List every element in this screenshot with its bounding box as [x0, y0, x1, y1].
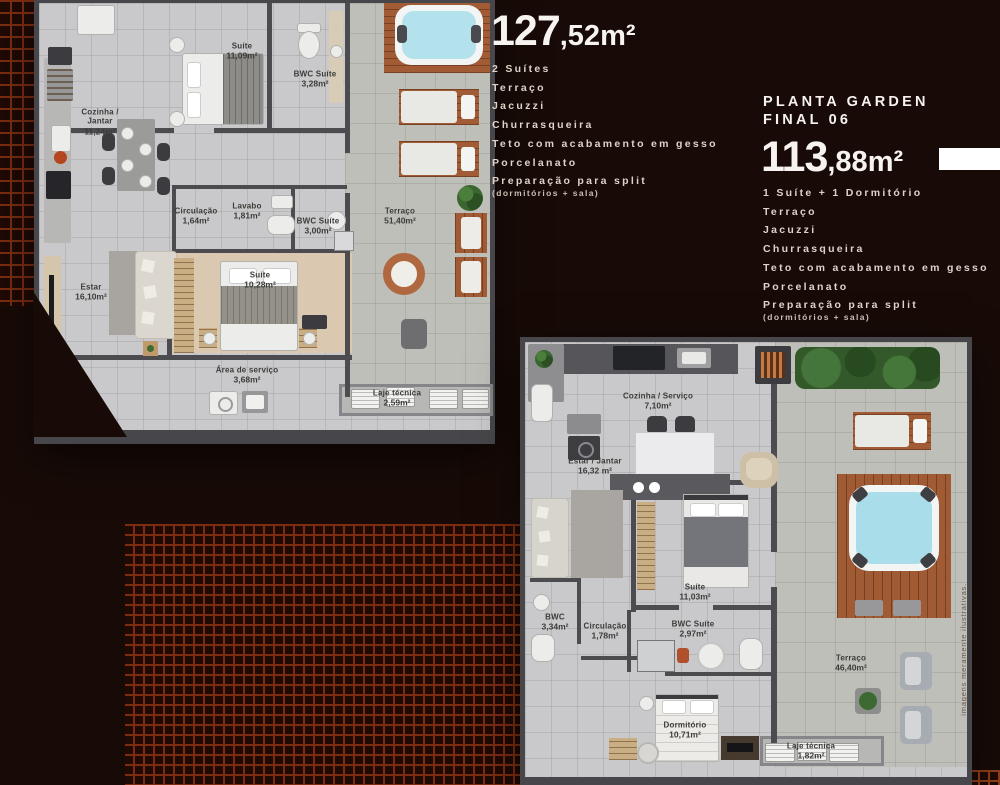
oven	[47, 69, 73, 101]
unit-right-area: 113,88m²	[761, 136, 903, 179]
kitchen-island	[635, 432, 715, 476]
plant	[147, 345, 154, 352]
deck-bench	[893, 600, 921, 616]
wall	[581, 656, 641, 660]
blanket	[684, 517, 748, 567]
room-label-laje-tecnica: Laje técnica 2,59m²	[373, 388, 421, 407]
island-chair	[675, 416, 695, 432]
coffee-table	[143, 341, 158, 356]
service-sink	[242, 391, 268, 413]
desk	[567, 414, 601, 434]
armchair-cushion	[746, 458, 772, 480]
sofa	[135, 251, 177, 339]
lounger	[399, 141, 479, 177]
wall	[44, 355, 352, 360]
unit-right-features-note: (dormitórios + sala)	[763, 312, 870, 322]
jacuzzi	[849, 485, 939, 571]
plant	[457, 185, 483, 211]
rug	[637, 742, 659, 764]
feature-item: Teto com acabamento em gesso	[492, 135, 718, 154]
plate	[139, 175, 152, 188]
room-label-bwc: BWC 3,34m²	[542, 612, 569, 631]
wall	[631, 605, 679, 610]
wall	[345, 193, 350, 397]
basin	[246, 395, 264, 409]
room-label-estar: Estar 16,10m²	[75, 282, 107, 301]
bed-suite-1	[182, 53, 264, 125]
stool	[677, 648, 689, 663]
pot	[54, 151, 67, 164]
plate	[121, 159, 134, 172]
armchair	[900, 652, 932, 690]
unit-top-final-label: FINAL 05	[492, 0, 589, 4]
lounger-pillow	[913, 419, 927, 443]
terrace-chair	[455, 213, 487, 253]
lounger-pillow	[461, 147, 475, 171]
wall	[267, 3, 272, 128]
wall	[627, 610, 631, 672]
wall	[172, 249, 347, 253]
ac-unit	[462, 389, 489, 409]
lounger	[853, 412, 931, 450]
round-basin	[533, 594, 550, 611]
wall	[172, 185, 347, 189]
deck-bench	[855, 600, 883, 616]
room-label-bwc-suite-1: BWC Suíte 3,28m²	[294, 69, 337, 88]
headboard	[684, 495, 748, 500]
unit-right-features: 1 Suíte + 1 Dormitório Terraço Jacuzzi C…	[763, 184, 989, 315]
floorplan-final-05: Suíte 11,09m² BWC Suíte 3,28m² Cozinha /…	[34, 0, 495, 444]
ac-unit	[429, 389, 458, 409]
accent-bar	[939, 148, 1000, 170]
pillow	[141, 259, 155, 273]
pillow	[536, 554, 548, 566]
grill	[755, 346, 791, 384]
chair-cushion	[461, 261, 481, 293]
terrace-chair	[455, 257, 487, 297]
armchair-cushion	[905, 711, 921, 739]
lounger	[399, 89, 479, 125]
unit-top-features-note: (dormitórios + sala)	[492, 188, 599, 198]
kitchen-sink	[51, 125, 71, 152]
toilet	[267, 215, 295, 235]
jacuzzi-water	[856, 492, 932, 564]
pillow	[187, 62, 201, 88]
planter	[855, 688, 881, 714]
pillow	[690, 700, 714, 714]
cooktop	[613, 346, 665, 370]
toilet	[739, 638, 763, 670]
bedside-lamp	[169, 37, 185, 53]
room-label-bwc-suite-2: BWC Suíte 3,00m²	[297, 216, 340, 235]
feature-item: Churrasqueira	[763, 240, 989, 259]
wall	[713, 605, 777, 610]
room-label-terraco: Terraço 46,40m²	[835, 653, 867, 672]
toilet	[531, 634, 555, 662]
bedside-lamp	[639, 696, 654, 711]
wall	[577, 578, 581, 644]
washer	[209, 391, 238, 415]
pillow	[718, 503, 744, 517]
plate	[649, 482, 660, 493]
round-table	[383, 253, 425, 295]
feature-item: Porcelanato	[763, 278, 989, 297]
floorplan-final-06: Cozinha / Serviço 7,10m² Estar / Jantar …	[520, 337, 972, 785]
hedge	[795, 347, 940, 389]
brochure-page: Suíte 11,09m² BWC Suíte 3,28m² Cozinha /…	[0, 0, 1000, 785]
cooktop	[46, 171, 71, 199]
jacuzzi-headrest	[471, 25, 481, 43]
blanket	[223, 54, 263, 124]
wardrobe	[609, 738, 637, 760]
bed-suite	[683, 494, 749, 588]
pillow	[662, 700, 686, 714]
sofa	[531, 498, 569, 578]
jacuzzi-water	[402, 11, 476, 59]
headboard	[656, 695, 718, 699]
lounger-pad	[401, 143, 457, 175]
room-label-circulacao: Circulação 1,78m²	[584, 621, 627, 640]
disclaimer-watermark: imagens meramente ilustrativas.	[959, 583, 968, 716]
feature-item: Terraço	[763, 203, 989, 222]
toilet	[298, 31, 320, 59]
wall	[530, 578, 580, 582]
room-label-bwc-suite: BWC Suíte 2,97m²	[672, 619, 715, 638]
room-label-circulacao: Circulação 1,64m²	[175, 206, 218, 225]
jacuzzi	[395, 5, 483, 65]
basin	[682, 352, 706, 364]
room-label-laje-tecnica: Laje técnica 1,82m²	[787, 741, 835, 760]
bedside-lamp	[303, 332, 316, 345]
wall	[214, 128, 345, 133]
room-label-estar-jantar: Estar / Jantar 16,32 m²	[568, 456, 622, 475]
ottoman	[401, 319, 427, 349]
room-label-terraco: Terraço 51,40m²	[384, 206, 416, 225]
feature-item: Terraço	[492, 79, 718, 98]
tub	[531, 384, 553, 422]
basin	[271, 195, 293, 209]
feature-item: Churrasqueira	[492, 116, 718, 135]
pillow	[538, 530, 550, 542]
armchair	[900, 706, 932, 744]
fridge	[77, 5, 115, 35]
blanket	[221, 286, 297, 324]
unit-right-title-line1: PLANTA GARDEN	[763, 93, 929, 111]
feature-item: Porcelanato	[492, 154, 718, 173]
pillow	[536, 506, 549, 519]
feature-item: Jacuzzi	[492, 97, 718, 116]
rug	[109, 251, 137, 335]
bedside-lamp	[203, 332, 216, 345]
room-label-cozinha-servico: Cozinha / Serviço 7,10m²	[623, 391, 693, 410]
room-label-suite: Suíte 11,03m²	[679, 582, 710, 601]
wall	[665, 672, 775, 676]
feature-item: 1 Suíte + 1 Dormitório	[763, 184, 989, 203]
plant	[859, 692, 877, 710]
plate	[633, 482, 644, 493]
media-console	[721, 736, 759, 760]
basin	[330, 45, 343, 58]
dining-chair	[102, 167, 115, 185]
wall	[345, 3, 350, 153]
chair-cushion	[461, 217, 481, 249]
unit-right-title-line2: FINAL 06	[763, 111, 929, 129]
brick-pattern-left	[0, 0, 37, 306]
jacuzzi-headrest	[397, 25, 407, 43]
feature-item: Teto com acabamento em gesso	[763, 259, 989, 278]
unit-right-title: PLANTA GARDEN FINAL 06	[763, 93, 929, 129]
shower	[637, 640, 675, 672]
lounger-pad	[401, 91, 457, 123]
grill-slats	[761, 352, 785, 378]
dining-chair	[157, 177, 170, 195]
feature-item: 2 Suítes	[492, 60, 718, 79]
unit-top-area: 127,52m²	[491, 10, 636, 53]
armchair	[740, 452, 778, 488]
armchair-cushion	[905, 657, 921, 685]
feature-item: Jacuzzi	[763, 221, 989, 240]
lounger-pillow	[461, 95, 475, 119]
plant	[535, 350, 553, 368]
tv	[727, 743, 753, 752]
island-chair	[647, 416, 667, 432]
round-basin	[697, 642, 725, 670]
room-label-suite-1: Suíte 11,09m²	[226, 41, 257, 60]
kitchen-sink	[677, 348, 711, 368]
wardrobe	[637, 502, 655, 590]
kitchen-cabinet	[48, 47, 72, 65]
wardrobe	[174, 258, 194, 353]
rug	[571, 490, 623, 578]
pillow	[690, 503, 716, 517]
lounger-pad	[855, 415, 909, 447]
plate	[139, 143, 152, 156]
room-label-lavabo: Lavabo 1,81m²	[232, 201, 261, 220]
bedside-lamp	[169, 111, 185, 127]
unit-top-features: 2 Suítes Terraço Jacuzzi Churrasqueira T…	[492, 60, 718, 191]
washer-door	[218, 397, 233, 412]
room-label-area-servico: Área de serviço 3,68m²	[216, 365, 279, 384]
room-label-suite-2: Suíte 10,28m²	[244, 270, 276, 289]
room-label-cozinha-jantar: Cozinha / Jantar 11,24m²	[74, 108, 126, 137]
dining-chair	[157, 143, 170, 161]
room-label-dormitorio: Dormitório 10,71m²	[664, 720, 707, 739]
brick-pattern-bottom	[125, 524, 520, 785]
pillow	[141, 311, 155, 325]
pillow	[143, 285, 157, 299]
pillow	[187, 92, 201, 118]
dresser	[302, 315, 327, 329]
